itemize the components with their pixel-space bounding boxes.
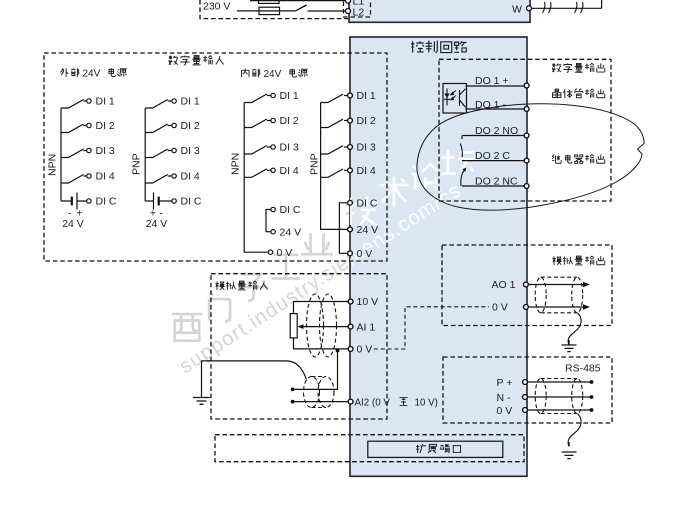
svg-text:DI 2: DI 2 [280, 115, 299, 127]
svg-text:230 V: 230 V [203, 1, 230, 13]
svg-text:DI 2: DI 2 [96, 120, 115, 132]
svg-text:DO 1 +: DO 1 + [475, 75, 509, 87]
svg-text:DI 3: DI 3 [280, 142, 299, 154]
svg-text:DI 4: DI 4 [96, 171, 115, 183]
svg-text:DI C: DI C [357, 198, 378, 210]
svg-text:L2: L2 [353, 7, 365, 19]
svg-text:NPN: NPN [47, 154, 59, 176]
svg-text:24 V: 24 V [357, 224, 379, 236]
svg-text:DI 4: DI 4 [357, 165, 376, 177]
svg-text:0 V: 0 V [497, 405, 513, 417]
svg-text:0 V: 0 V [492, 301, 508, 313]
svg-text:AI2 (0 V: AI2 (0 V [355, 398, 391, 409]
svg-text:NPN: NPN [230, 153, 242, 175]
svg-text:AO 1: AO 1 [492, 279, 516, 291]
svg-text:24 V: 24 V [280, 226, 302, 238]
svg-text:DI 3: DI 3 [357, 142, 376, 154]
svg-text:DI 2: DI 2 [357, 115, 376, 127]
svg-text:DI 4: DI 4 [181, 171, 200, 183]
svg-text:DO 2 C: DO 2 C [475, 150, 510, 162]
svg-text:AI 1: AI 1 [357, 321, 376, 333]
svg-text:DI 4: DI 4 [280, 165, 299, 177]
svg-text:24 V: 24 V [146, 218, 168, 230]
svg-text:RS-485: RS-485 [565, 363, 601, 375]
svg-text:DI 1: DI 1 [181, 96, 200, 108]
svg-text:0 V: 0 V [357, 344, 373, 356]
svg-text:W: W [512, 4, 522, 16]
svg-text:24V: 24V [264, 69, 282, 80]
svg-text:P +: P + [497, 377, 513, 389]
svg-text:10 V: 10 V [357, 296, 379, 308]
svg-text:DI 3: DI 3 [96, 145, 115, 157]
svg-text:DI C: DI C [280, 204, 301, 216]
svg-text:N -: N - [497, 392, 512, 404]
svg-text:DI 1: DI 1 [96, 96, 115, 108]
svg-text:PNP: PNP [131, 153, 143, 175]
svg-text:DI 1: DI 1 [280, 90, 299, 102]
svg-text:0 V: 0 V [357, 248, 373, 260]
svg-text:DO 1 -: DO 1 - [475, 99, 506, 111]
svg-text:DI C: DI C [181, 196, 202, 208]
svg-text:24V: 24V [83, 69, 101, 80]
svg-text:0 V: 0 V [277, 247, 293, 259]
svg-text:DI 2: DI 2 [181, 120, 200, 132]
svg-text:24 V: 24 V [62, 218, 84, 230]
svg-text:10 V): 10 V) [415, 398, 438, 409]
svg-text:PNP: PNP [309, 153, 321, 175]
svg-text:DO 2 NO: DO 2 NO [475, 125, 518, 137]
svg-text:DI C: DI C [96, 196, 117, 208]
svg-text:DI 1: DI 1 [357, 90, 376, 102]
svg-text:DI 3: DI 3 [181, 145, 200, 157]
svg-text:DO 2 NC: DO 2 NC [475, 176, 518, 188]
